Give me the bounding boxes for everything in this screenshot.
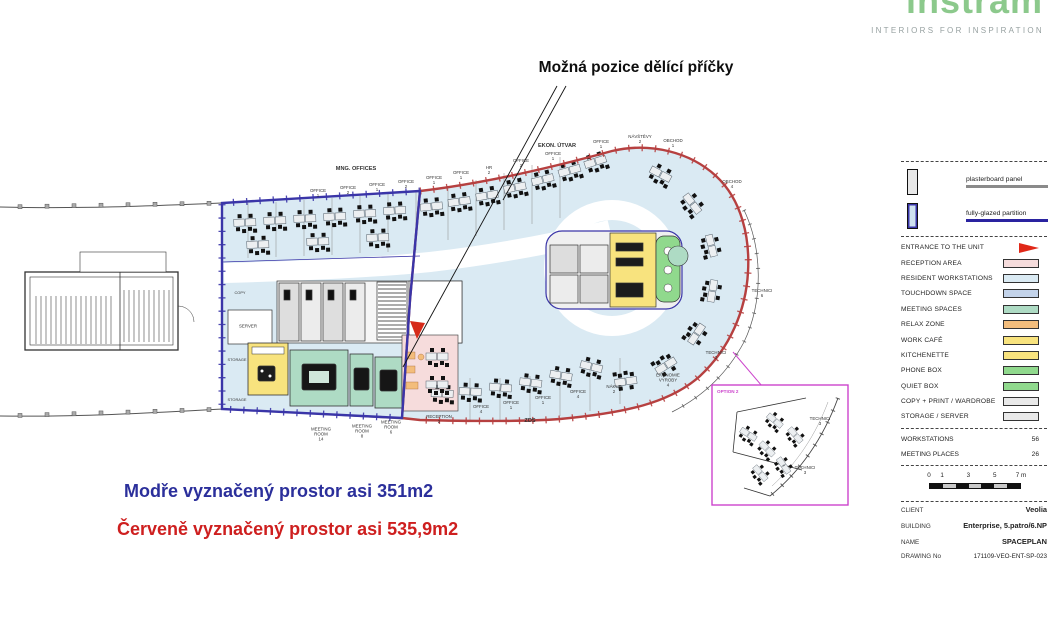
- legend-zone-row: STORAGE / SERVER: [901, 409, 1047, 424]
- plan-area-label: OFFICE 1: [453, 170, 469, 180]
- scale-segment: [994, 484, 1007, 489]
- plan-area-label: OFFICE 2: [398, 179, 414, 189]
- legend-zone-row: TOUCHDOWN SPACE: [901, 286, 1047, 301]
- title-block-label: NAME: [901, 539, 919, 546]
- legend-zone-label: WORK CAFÉ: [901, 337, 943, 344]
- scale-tick-label: 5: [993, 472, 997, 479]
- legend-zone-row: QUIET BOX: [901, 379, 1047, 394]
- legend-zone-swatch: [1003, 351, 1039, 360]
- legend-stat-row: WORKSTATIONS56: [901, 432, 1047, 447]
- zone-reception: [402, 335, 458, 411]
- zone-meeting-rooms: [290, 350, 402, 408]
- divider: [901, 428, 1047, 429]
- legend-stats: WORKSTATIONS56MEETING PLACES26: [901, 432, 1047, 462]
- legend-glazed-row: fully-glazed partition: [901, 199, 1047, 233]
- legend-zone-list: RECEPTION AREARESIDENT WORKSTATIONSTOUCH…: [901, 255, 1047, 424]
- plan-area-label: STORAGE: [228, 398, 247, 402]
- legend-zone-row: RECEPTION AREA: [901, 255, 1047, 270]
- scale-segment: [981, 484, 994, 489]
- plan-area-label: OFFICE 1: [545, 151, 561, 161]
- plan-area-label: EKONOMIE VÝROBY 4: [656, 372, 680, 387]
- plan-area-label: OFFICE 1: [310, 188, 326, 198]
- legend-zone-swatch: [1003, 412, 1039, 421]
- title-block-label: BUILDING: [901, 523, 931, 530]
- title-block-value: Enterprise, 5.patro/6.NP: [963, 521, 1047, 530]
- legend-zone-row: RESIDENT WORKSTATIONS: [901, 271, 1047, 286]
- plan-area-label: SERVER: [239, 323, 257, 328]
- plan-area-label: TECHNICI 6: [752, 288, 773, 298]
- plan-area-label: NÁVŠTĚVY 2: [628, 134, 651, 144]
- scale-segment: [930, 484, 943, 489]
- legend-zone-label: KITCHENETTE: [901, 352, 949, 359]
- core-rooms-right: [546, 231, 688, 309]
- legend-zone-label: RELAX ZONE: [901, 321, 945, 328]
- red-area-note: Červeně vyznačený prostor asi 535,9m2: [117, 519, 458, 540]
- divider: [901, 501, 1047, 502]
- scale-bar-labels: 01357 m: [929, 472, 1021, 481]
- scale-segment: [943, 484, 956, 489]
- scale-bar-segments: [929, 483, 1021, 490]
- plan-area-label: OFFICE 2: [340, 185, 356, 195]
- legend-zone-row: COPY + PRINT / WARDROBE: [901, 394, 1047, 409]
- plasterboard-panel-label: plasterboard panel: [966, 176, 1022, 183]
- legend-zone-swatch: [1003, 289, 1039, 298]
- legend-plasterboard-row: plasterboard panel: [901, 165, 1047, 199]
- scale-tick-label: 3: [967, 472, 971, 479]
- legend-zone-row: RELAX ZONE: [901, 317, 1047, 332]
- legend-entrance-row: ENTRANCE TO THE UNIT: [901, 240, 1047, 255]
- legend-zone-label: TOUCHDOWN SPACE: [901, 290, 972, 297]
- plan-area-label: HR 2: [486, 165, 492, 175]
- glazed-partition-label: fully-glazed partition: [966, 210, 1026, 217]
- plan-area-label: RECEPTION 2: [426, 414, 452, 424]
- plan-area-label: MEETING ROOM 14: [311, 426, 331, 441]
- title-block-row: BUILDINGEnterprise, 5.patro/6.NP: [901, 521, 1047, 537]
- plan-area-label: OFFICE 1: [426, 175, 442, 185]
- legend-zone-label: COPY + PRINT / WARDROBE: [901, 398, 995, 405]
- inset-option-label: OPTION 2: [717, 389, 738, 394]
- legend-zone-swatch: [1003, 259, 1039, 268]
- divider: [901, 465, 1047, 466]
- zone-kitchenette: [248, 343, 288, 395]
- legend-zone-label: MEETING SPACES: [901, 306, 962, 313]
- annotation-heading: Možná pozice dělící příčky: [528, 59, 744, 77]
- legend-zone-label: STORAGE / SERVER: [901, 413, 969, 420]
- plan-area-label: TECHNICI 2: [706, 350, 727, 360]
- legend-zone-row: MEETING SPACES: [901, 302, 1047, 317]
- plan-area-label: OFFICE 2: [513, 158, 529, 168]
- plan-area-label: OFFICE 1: [535, 395, 551, 405]
- stat-value: 56: [1032, 436, 1039, 443]
- plan-area-label: MEETING ROOM 8: [352, 423, 372, 438]
- legend-zone-swatch: [1003, 320, 1039, 329]
- legend-zone-row: PHONE BOX: [901, 363, 1047, 378]
- legend-zone-swatch: [1003, 397, 1039, 406]
- legend-zone-swatch: [1003, 366, 1039, 375]
- plan-area-label: OFFICE 4: [473, 404, 489, 414]
- plan-area-label: EKON. ÚTVAR: [538, 143, 576, 149]
- title-block-value: SPACEPLAN: [1002, 537, 1047, 546]
- title-block-value: 171109-VEO-ENT-SP-023: [974, 553, 1047, 560]
- legend-zone-label: RECEPTION AREA: [901, 260, 962, 267]
- legend-panel: plasterboard panel fully-glazed partitio…: [901, 158, 1047, 569]
- plan-area-label: TECHNICI 3: [810, 416, 831, 426]
- plasterboard-panel-icon: [907, 169, 918, 195]
- blue-area-note: Modře vyznačený prostor asi 351m2: [124, 481, 433, 502]
- plan-area-label: MNG. OFFICES: [336, 166, 376, 172]
- plan-area-label: OFFICE 1: [369, 182, 385, 192]
- title-block-row: DRAWING No171109-VEO-ENT-SP-023: [901, 553, 1047, 569]
- stair-core: [25, 252, 194, 350]
- plan-area-label: OFFICE 1: [593, 139, 609, 149]
- plan-area-label: OFFICE 1: [503, 400, 519, 410]
- divider: [901, 161, 1047, 162]
- plan-area-label: NÁKUP 2: [606, 384, 621, 394]
- title-block-label: CLIENT: [901, 507, 923, 514]
- plan-area-label: STORAGE: [228, 358, 247, 362]
- entrance-label: ENTRANCE TO THE UNIT: [901, 244, 984, 251]
- logo: instram: [877, 0, 1047, 21]
- scale-segment: [956, 484, 969, 489]
- plan-area-label: OBCHOD 1: [663, 138, 682, 148]
- stat-label: WORKSTATIONS: [901, 436, 954, 443]
- scale-tick-label: 7 m: [1016, 472, 1027, 479]
- entrance-arrow-icon: [1019, 243, 1039, 253]
- legend-zone-swatch: [1003, 305, 1039, 314]
- plan-area-label: ZDS: [524, 418, 535, 424]
- plan-area-label: OFFICE 4: [570, 389, 586, 399]
- plan-area-label: COPY: [234, 291, 245, 295]
- plan-area-label: TECHNICI 3: [795, 465, 816, 475]
- legend-zone-label: RESIDENT WORKSTATIONS: [901, 275, 993, 282]
- legend-zone-row: KITCHENETTE: [901, 348, 1047, 363]
- stat-value: 26: [1032, 451, 1039, 458]
- logo-tagline: INTERIORS FOR INSPIRATION: [871, 26, 1044, 35]
- glazed-sample-line: [966, 219, 1048, 222]
- legend-zone-swatch: [1003, 274, 1039, 283]
- plasterboard-sample-line: [966, 185, 1048, 188]
- plan-area-label: MEETING ROOM 6: [381, 419, 401, 434]
- inset-option2: [712, 352, 848, 505]
- title-block: CLIENTVeoliaBUILDINGEnterprise, 5.patro/…: [901, 505, 1047, 569]
- glazed-partition-icon: [907, 203, 918, 229]
- legend-stat-row: MEETING PLACES26: [901, 447, 1047, 462]
- divider: [901, 236, 1047, 237]
- scale-tick-label: 1: [940, 472, 944, 479]
- title-block-row: NAMESPACEPLAN: [901, 537, 1047, 553]
- legend-zone-row: WORK CAFÉ: [901, 332, 1047, 347]
- legend-zone-label: PHONE BOX: [901, 367, 942, 374]
- legend-zone-label: QUIET BOX: [901, 383, 939, 390]
- stat-label: MEETING PLACES: [901, 451, 959, 458]
- scale-segment: [969, 484, 982, 489]
- title-block-value: Veolia: [1026, 505, 1047, 514]
- scale-bar: 01357 m: [929, 472, 1021, 498]
- legend-zone-swatch: [1003, 382, 1039, 391]
- logo-wordmark: instram: [877, 0, 1047, 19]
- title-block-row: CLIENTVeolia: [901, 505, 1047, 521]
- legend-zone-swatch: [1003, 336, 1039, 345]
- scale-tick-label: 0: [927, 472, 931, 479]
- plan-area-label: OBCHOD 4: [722, 179, 741, 189]
- scale-segment: [1007, 484, 1020, 489]
- title-block-label: DRAWING No: [901, 553, 941, 560]
